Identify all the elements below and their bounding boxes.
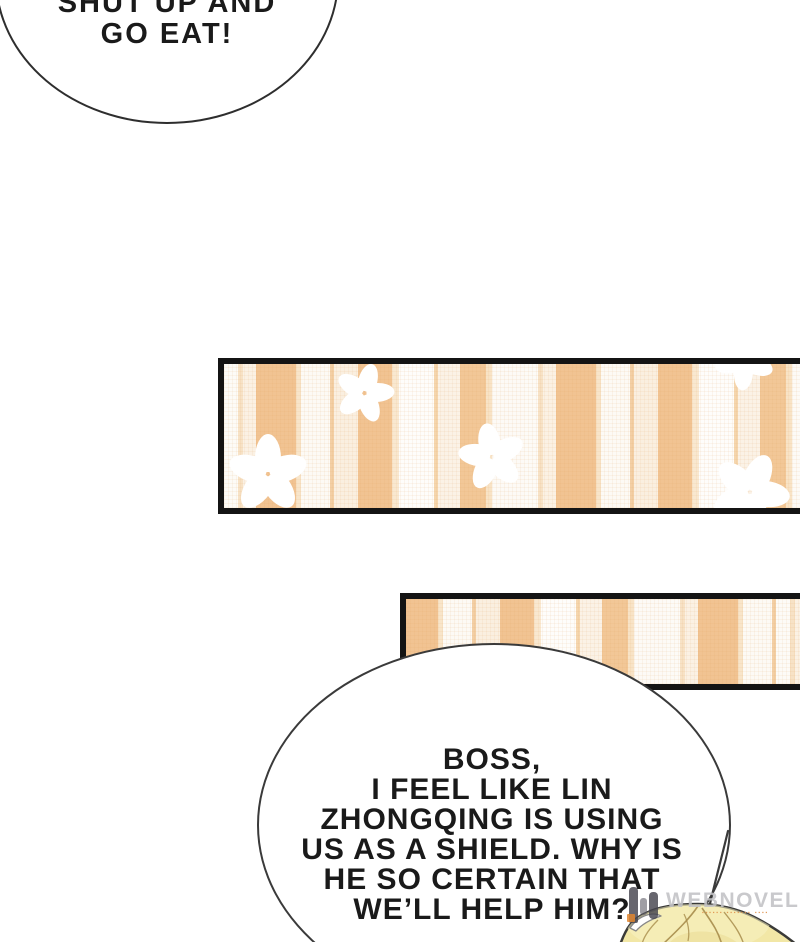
speech-bubble-top-text: SHUT UP AND GO EAT! — [0, 0, 334, 50]
webnovel-logo-icon — [626, 883, 664, 925]
decorative-panel-1 — [218, 358, 800, 514]
watermark: WEBNOVEL ▪▪▪▪▪▪ ▪▪▪▪▪▪▪ ▪▪▪▪ — [626, 883, 800, 925]
comic-page: SHUT UP AND GO EAT! BOSS, I FEEL LIKE LI… — [0, 0, 800, 942]
watermark-tagline: ▪▪▪▪▪▪ ▪▪▪▪▪▪▪ ▪▪▪▪ — [702, 910, 769, 916]
